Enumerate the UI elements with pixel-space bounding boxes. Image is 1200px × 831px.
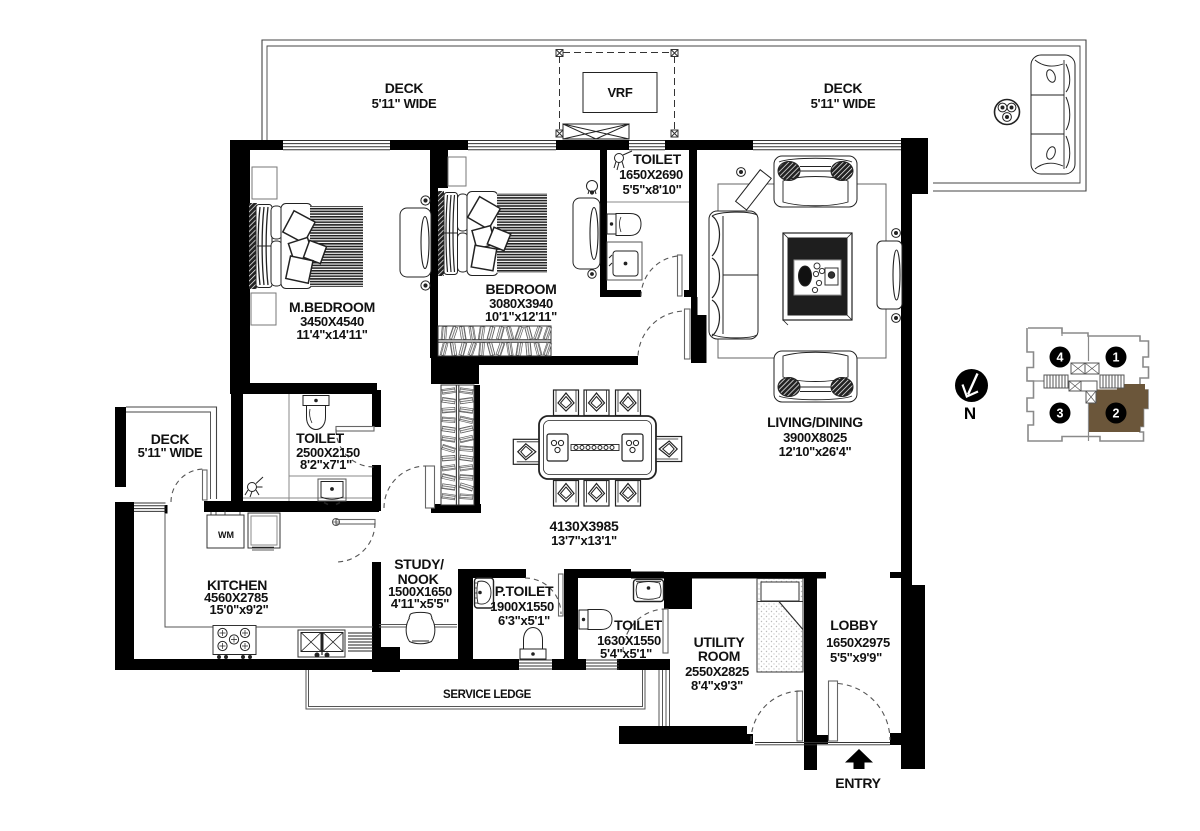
svg-text:10'1"x12'11": 10'1"x12'11" bbox=[485, 309, 557, 324]
svg-text:1650X2975: 1650X2975 bbox=[826, 635, 890, 650]
svg-text:P.TOILET: P.TOILET bbox=[495, 583, 554, 599]
svg-text:2550X2825: 2550X2825 bbox=[685, 664, 749, 679]
svg-text:1900X1550: 1900X1550 bbox=[490, 599, 554, 614]
svg-text:8'2"x7'1": 8'2"x7'1" bbox=[300, 457, 352, 472]
svg-text:4'11"x5'5": 4'11"x5'5" bbox=[391, 596, 449, 611]
svg-text:11'4"x14'11": 11'4"x14'11" bbox=[296, 327, 367, 342]
svg-text:3900X8025: 3900X8025 bbox=[783, 430, 847, 445]
svg-text:DECK: DECK bbox=[385, 80, 424, 96]
svg-text:1650X2690: 1650X2690 bbox=[619, 167, 683, 182]
svg-text:6'3"x5'1": 6'3"x5'1" bbox=[498, 613, 550, 628]
svg-text:LIVING/DINING: LIVING/DINING bbox=[767, 414, 863, 430]
svg-text:SERVICE LEDGE: SERVICE LEDGE bbox=[443, 689, 532, 701]
svg-text:DECK: DECK bbox=[824, 80, 863, 96]
svg-text:N: N bbox=[964, 404, 976, 423]
svg-text:3: 3 bbox=[1057, 407, 1064, 421]
svg-text:5'5"x8'10": 5'5"x8'10" bbox=[623, 182, 682, 197]
svg-text:ENTRY: ENTRY bbox=[835, 775, 881, 791]
svg-text:5'11" WIDE: 5'11" WIDE bbox=[811, 96, 876, 111]
svg-text:TOILET: TOILET bbox=[633, 151, 681, 167]
svg-text:12'10"x26'4": 12'10"x26'4" bbox=[779, 444, 852, 459]
svg-text:TOILET: TOILET bbox=[614, 617, 662, 633]
svg-text:5'11" WIDE: 5'11" WIDE bbox=[372, 96, 437, 111]
svg-text:TOILET: TOILET bbox=[296, 430, 344, 446]
svg-text:1: 1 bbox=[1113, 351, 1120, 365]
svg-text:8'4"x9'3": 8'4"x9'3" bbox=[691, 678, 743, 693]
svg-text:WM: WM bbox=[218, 530, 234, 540]
svg-text:4130X3985: 4130X3985 bbox=[550, 518, 619, 534]
svg-text:5'5"x9'9": 5'5"x9'9" bbox=[830, 650, 882, 665]
svg-text:15'0"x9'2": 15'0"x9'2" bbox=[210, 602, 269, 617]
svg-text:5'11" WIDE: 5'11" WIDE bbox=[138, 445, 203, 460]
svg-text:5'4"x5'1": 5'4"x5'1" bbox=[600, 646, 652, 661]
svg-text:2: 2 bbox=[1113, 407, 1120, 421]
svg-text:13'7"x13'1": 13'7"x13'1" bbox=[551, 533, 617, 548]
svg-text:M.BEDROOM: M.BEDROOM bbox=[289, 299, 375, 315]
svg-text:STUDY/: STUDY/ bbox=[394, 556, 444, 572]
svg-text:VRF: VRF bbox=[607, 85, 632, 100]
svg-text:4: 4 bbox=[1057, 351, 1064, 365]
svg-text:BEDROOM: BEDROOM bbox=[485, 281, 556, 297]
svg-text:LOBBY: LOBBY bbox=[830, 617, 878, 633]
svg-text:ROOM: ROOM bbox=[698, 648, 740, 664]
